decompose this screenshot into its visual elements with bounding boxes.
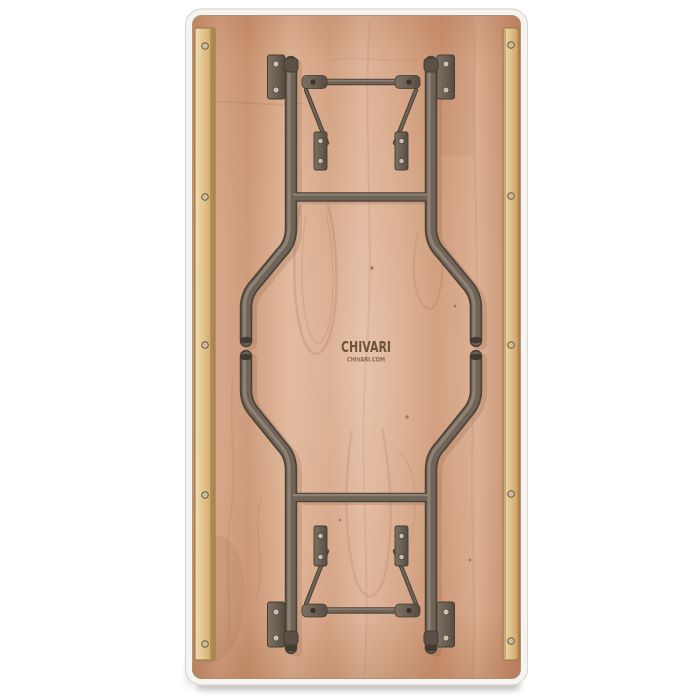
hinge-knuckle	[284, 631, 298, 645]
rail-edge-shadow	[210, 29, 214, 659]
lock-bracket-top-right	[395, 132, 408, 170]
rail-screw	[508, 638, 515, 645]
rail-screw	[202, 492, 209, 499]
rail-screw	[508, 42, 515, 49]
brand-url: CHIVARI.COM	[347, 358, 385, 364]
rail-screw	[202, 641, 209, 648]
rail-screw	[508, 491, 515, 498]
table-underside-photo: CHIVARI CHIVARI.COM	[0, 0, 700, 700]
rail-screw	[508, 342, 515, 349]
brand-stamp: CHIVARI CHIVARI.COM	[341, 338, 391, 364]
hinge-knuckle	[284, 58, 298, 72]
rail-screw	[202, 342, 209, 349]
lock-bracket-top-left	[314, 132, 327, 170]
rail-edge-shadow	[503, 29, 506, 659]
product-photo-stage: CHIVARI CHIVARI.COM	[0, 0, 700, 700]
rail-screw	[202, 43, 209, 50]
rail-screw	[202, 194, 209, 201]
rail-screw	[508, 193, 515, 200]
hinge-knuckle	[424, 58, 438, 72]
hinge-knuckle	[424, 631, 438, 645]
brand-title: CHIVARI	[341, 338, 391, 356]
